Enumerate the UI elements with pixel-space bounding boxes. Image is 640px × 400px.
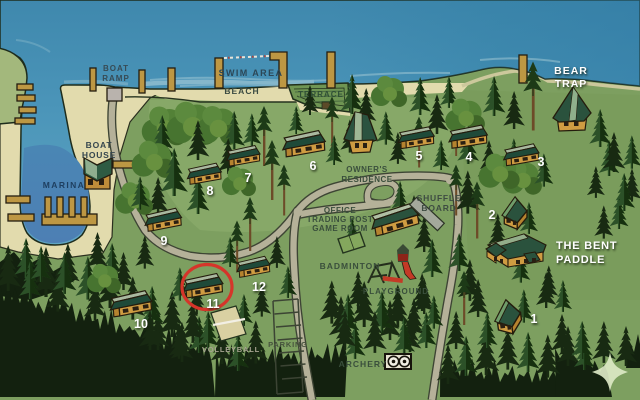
svg-text:BEACH: BEACH (224, 86, 259, 96)
svg-text:PARKING: PARKING (268, 340, 308, 349)
svg-text:BOAT: BOAT (103, 64, 129, 73)
svg-text:PADDLE: PADDLE (556, 254, 605, 266)
svg-text:6: 6 (310, 159, 317, 173)
svg-text:THE BENT: THE BENT (556, 240, 617, 252)
svg-text:9: 9 (161, 234, 168, 248)
svg-text:SHUFFLE: SHUFFLE (417, 193, 462, 203)
svg-text:TRADING POST: TRADING POST (307, 215, 373, 224)
svg-text:TRAP: TRAP (555, 78, 588, 90)
svg-text:BEAR: BEAR (554, 65, 588, 77)
svg-text:8: 8 (207, 184, 214, 198)
svg-text:1: 1 (531, 312, 538, 326)
svg-text:BADMINTON: BADMINTON (320, 261, 381, 271)
svg-text:11: 11 (206, 297, 219, 311)
svg-text:2: 2 (489, 208, 496, 222)
svg-text:OFFICE: OFFICE (324, 206, 356, 215)
svg-text:3: 3 (538, 155, 545, 169)
svg-text:5: 5 (416, 149, 423, 163)
svg-text:GAME ROOM: GAME ROOM (312, 224, 368, 233)
svg-text:4: 4 (466, 150, 473, 164)
svg-text:10: 10 (134, 317, 148, 331)
svg-text:BOAT: BOAT (86, 140, 113, 150)
svg-text:RAMP: RAMP (102, 74, 130, 83)
svg-text:VOLLEYBALL: VOLLEYBALL (202, 345, 260, 354)
svg-text:TERRACE: TERRACE (298, 90, 344, 99)
svg-text:SWIM AREA: SWIM AREA (219, 68, 284, 78)
svg-text:PLAYGROUND: PLAYGROUND (363, 287, 429, 296)
svg-text:HOUSE: HOUSE (82, 150, 116, 160)
svg-text:MARINA: MARINA (43, 180, 85, 190)
svg-text:BOARD: BOARD (421, 203, 456, 213)
svg-text:12: 12 (252, 280, 266, 294)
svg-text:RESIDENCE: RESIDENCE (341, 175, 392, 184)
svg-text:OWNER'S: OWNER'S (346, 165, 388, 174)
svg-text:7: 7 (245, 171, 252, 185)
svg-text:ARCHERY: ARCHERY (339, 359, 388, 369)
